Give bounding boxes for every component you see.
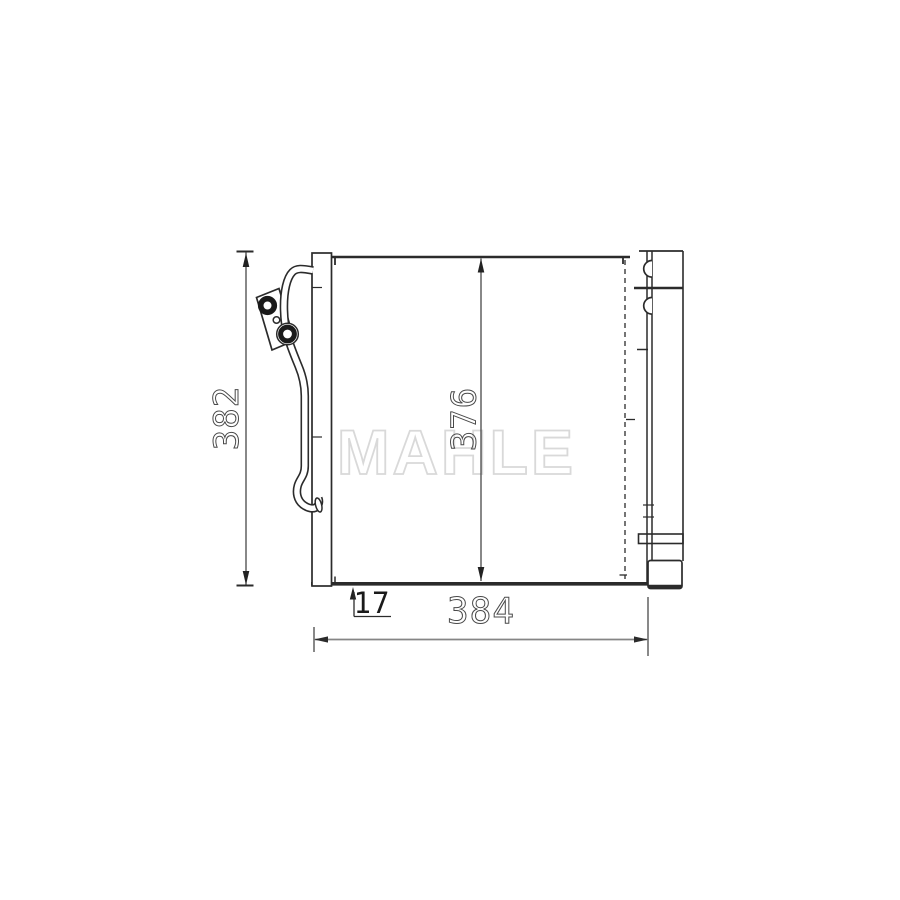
dim384-arrow-right — [634, 636, 648, 642]
drier-end-cap — [648, 561, 682, 589]
drier-bracket — [639, 534, 684, 544]
drier-bump-bottom — [644, 298, 652, 315]
dim382-label: 382 — [207, 386, 247, 450]
left-tank-outline — [312, 253, 332, 586]
left-tank — [312, 253, 332, 586]
dim17-label: 17 — [354, 586, 391, 620]
dim376-label: 376 — [445, 387, 485, 451]
dim382-arrow-down — [243, 571, 250, 585]
dim376-arrow-up — [478, 259, 485, 273]
dimension-376: 376 — [445, 259, 485, 582]
condenser-technical-drawing-page: MAHLE — [0, 0, 900, 900]
dim376-arrow-down — [478, 567, 485, 581]
fitting-port-bottom-ring — [281, 327, 295, 341]
drier-bump-top — [644, 261, 652, 278]
dim382-arrow-up — [243, 253, 250, 267]
receiver-drier — [620, 251, 684, 589]
dimension-382: 382 — [207, 252, 254, 586]
bracket-small-hole — [273, 317, 280, 324]
dim384-label: 384 — [447, 591, 515, 632]
dim384-arrow-left — [314, 636, 328, 642]
condenser-technical-drawing: MAHLE — [0, 0, 900, 900]
fitting-port-top — [261, 299, 275, 313]
